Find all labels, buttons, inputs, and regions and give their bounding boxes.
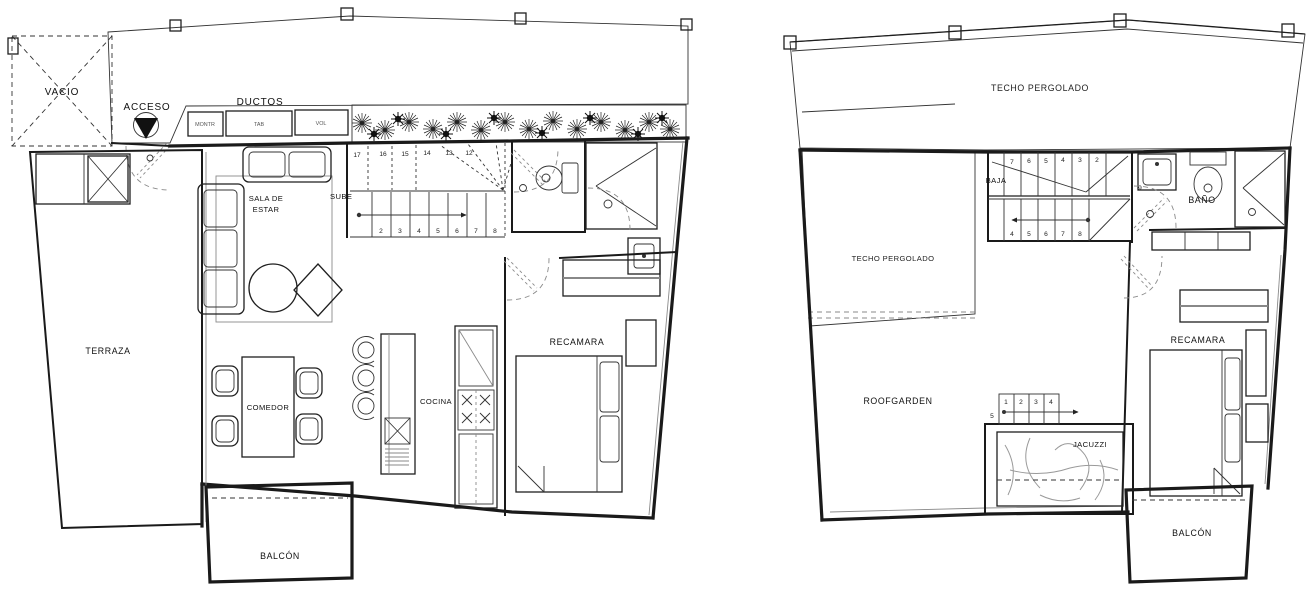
stair-number: 6 xyxy=(455,228,459,235)
recamara2-label: RECAMARA xyxy=(1171,335,1226,345)
pergola-post xyxy=(949,26,961,39)
bedroom-door-leaf xyxy=(504,258,537,291)
recamara-label: RECAMARA xyxy=(550,337,605,347)
bed-fold xyxy=(1214,468,1240,494)
room-bano: BAÑO xyxy=(1134,151,1285,250)
closet xyxy=(563,260,660,296)
stair-number: 4 xyxy=(417,228,421,235)
closet-2 xyxy=(1180,290,1268,322)
kitchen-island xyxy=(381,334,415,474)
stair-number: 7 xyxy=(474,228,478,235)
pillow xyxy=(1225,358,1240,410)
side-table xyxy=(294,264,342,316)
bed xyxy=(516,356,622,492)
stair-number: 7 xyxy=(1061,231,1065,238)
pillow xyxy=(1225,414,1240,462)
bath-door-leaf xyxy=(511,150,546,185)
stair-number: 4 xyxy=(1061,157,1065,164)
pergola-post xyxy=(1282,24,1294,37)
wall-post xyxy=(515,13,526,24)
stair-number: 13 xyxy=(445,150,453,157)
stair-number: 8 xyxy=(493,228,497,235)
nightstand xyxy=(626,320,656,366)
room-roofgarden: ROOFGARDEN xyxy=(863,396,932,406)
stair-number: 15 xyxy=(401,151,409,158)
bath-cabinets xyxy=(1152,232,1250,250)
wall-post xyxy=(170,20,181,31)
pillow xyxy=(600,362,619,412)
stair-number: 12 xyxy=(465,150,473,157)
shower xyxy=(586,143,657,230)
stair-number: 3 xyxy=(398,228,402,235)
stair-numbers-upper: 17 16 15 14 13 12 xyxy=(353,150,473,159)
room-balcon-1: BALCÓN xyxy=(206,483,352,582)
stair-number: 2 xyxy=(1095,157,1099,164)
stair-number: 2 xyxy=(379,228,383,235)
planter-strip xyxy=(352,105,686,142)
room-recamara-1: RECAMARA xyxy=(504,252,676,515)
pergola-wing-left: TECHO PERGOLADO xyxy=(802,150,975,326)
entry-arrow-icon xyxy=(134,118,158,139)
duct-box-label: TAB xyxy=(254,122,264,128)
bano-label: BAÑO xyxy=(1188,195,1215,205)
pillow xyxy=(600,416,619,462)
step-number: 4 xyxy=(1049,399,1053,406)
first-floor-plan: VACIO ACCESO DUCTOS MONTR TAB VOL xyxy=(8,8,692,582)
jacuzzi-area: JACUZZI 1 2 3 4 5 xyxy=(985,394,1133,514)
shower-2 xyxy=(1235,151,1285,227)
bedroom2-door-leaf xyxy=(1121,256,1152,289)
techo-pergolado-left-label: TECHO PERGOLADO xyxy=(852,254,935,263)
ducts-zone: DUCTOS MONTR TAB VOL xyxy=(188,97,348,136)
sala-label-line2: ESTAR xyxy=(253,205,280,214)
balcon-label: BALCÓN xyxy=(260,551,300,561)
acceso-label: ACCESO xyxy=(123,102,170,113)
vacio-label: VACIO xyxy=(45,87,79,98)
staircase-down: BAJA 7 6 5 4 3 2 4 5 6 7 8 9 xyxy=(986,152,1142,241)
stair-number: 16 xyxy=(379,151,387,158)
bed-2 xyxy=(1150,350,1242,496)
step-number: 5 xyxy=(990,413,994,420)
room-terraza: TERRAZA xyxy=(30,150,206,528)
coffee-table xyxy=(249,264,297,312)
step-number: 3 xyxy=(1034,399,1038,406)
staircase-up: SUBE 17 16 15 14 13 12 2 3 4 5 6 7 8 xyxy=(330,143,512,237)
comedor-label: COMEDOR xyxy=(247,403,290,412)
stove xyxy=(458,390,494,430)
bed-fold xyxy=(518,466,544,492)
techo-pergolado-top-label: TECHO PERGOLADO xyxy=(991,83,1089,93)
bano-door-leaf xyxy=(1134,198,1167,231)
toilet xyxy=(536,163,578,193)
stair-number: 5 xyxy=(1044,158,1048,165)
room-recamara-2: RECAMARA xyxy=(1121,256,1268,496)
exterior-walls-2 xyxy=(800,148,1290,520)
stair-number: 7 xyxy=(1010,159,1014,166)
stair-number: 6 xyxy=(1044,231,1048,238)
architectural-drawing-sheet: VACIO ACCESO DUCTOS MONTR TAB VOL xyxy=(0,0,1312,600)
step-number: 2 xyxy=(1019,399,1023,406)
toilet-2 xyxy=(1190,152,1226,201)
stair-number: 8 xyxy=(1078,231,1082,238)
room-balcon-2: BALCÓN xyxy=(1126,486,1252,582)
stair-number: 17 xyxy=(353,152,361,159)
duct-box-label: VOL xyxy=(316,121,327,127)
room-cocina: COCINA xyxy=(353,326,497,508)
cocina-label: COCINA xyxy=(420,397,452,406)
void-area: VACIO xyxy=(8,36,112,146)
stair-number: 5 xyxy=(1027,231,1031,238)
wall-post xyxy=(341,8,353,20)
kitchen-counter xyxy=(455,326,497,508)
stair-number: 4 xyxy=(1010,231,1014,238)
room-sala-de-estar: SALA DE ESTAR xyxy=(198,147,342,322)
jacuzzi-label: JACUZZI xyxy=(1073,440,1107,449)
baja-label: BAJA xyxy=(986,176,1007,185)
stair-number: 3 xyxy=(1078,157,1082,164)
stair-number: 14 xyxy=(423,150,431,157)
ductos-label: DUCTOS xyxy=(237,97,284,108)
sink xyxy=(1138,154,1176,190)
stair-numbers-lower: 2 3 4 5 6 7 8 xyxy=(379,228,497,235)
sube-label: SUBE xyxy=(330,192,352,201)
jacuzzi-steps: 1 2 3 4 5 xyxy=(990,394,1078,424)
roofgarden-label: ROOFGARDEN xyxy=(863,396,932,406)
pergola-band-top: TECHO PERGOLADO xyxy=(784,14,1305,150)
second-floor-plan: TECHO PERGOLADO TECHO PERGOLADO BAJA 7 6 xyxy=(784,14,1305,582)
balcon2-label: BALCÓN xyxy=(1172,528,1212,538)
sala-label-line1: SALA DE xyxy=(249,194,283,203)
stair-number: 6 xyxy=(1027,158,1031,165)
duct-box-label: MONTR xyxy=(195,122,215,128)
entry-door-leaf xyxy=(137,143,170,178)
room-comedor: COMEDOR xyxy=(212,357,322,457)
terraza-label: TERRAZA xyxy=(85,346,130,356)
bench xyxy=(1246,330,1266,396)
bar-stools xyxy=(353,337,374,420)
wall-post xyxy=(681,19,692,30)
stair-number: 5 xyxy=(436,228,440,235)
floor-plan-drawing: VACIO ACCESO DUCTOS MONTR TAB VOL xyxy=(0,0,1312,600)
step-number: 1 xyxy=(1004,399,1008,406)
entry-door-swing xyxy=(126,146,170,190)
nightstand-2 xyxy=(1246,404,1268,442)
